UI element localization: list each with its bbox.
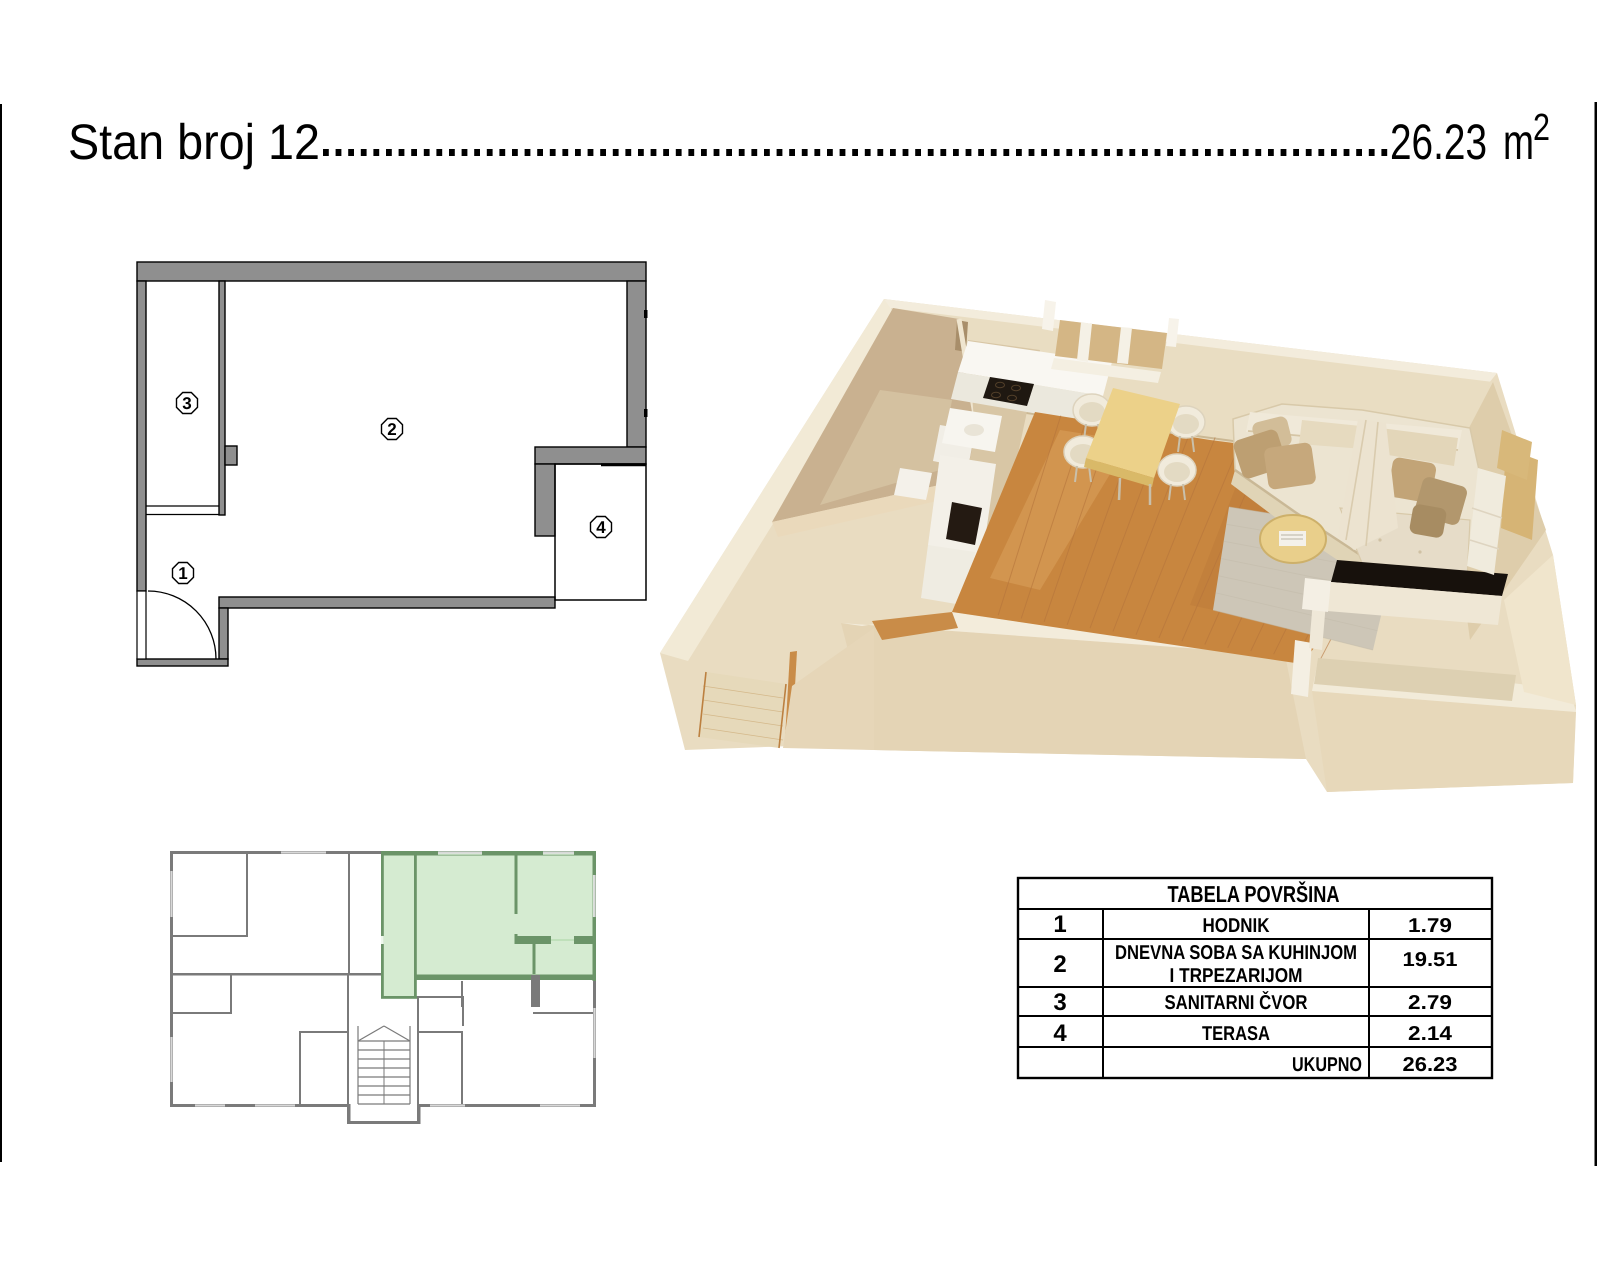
svg-text:TERASA: TERASA	[1202, 1023, 1270, 1045]
svg-text:3: 3	[1053, 989, 1066, 1016]
svg-text:19.51: 19.51	[1403, 949, 1458, 971]
svg-text:2.14: 2.14	[1408, 1023, 1453, 1045]
svg-text:2: 2	[387, 420, 396, 439]
svg-text:DNEVNA SOBA SA KUHINJOM: DNEVNA SOBA SA KUHINJOM	[1115, 942, 1357, 964]
svg-text:1.79: 1.79	[1408, 915, 1452, 937]
svg-text:I TRPEZARIJOM: I TRPEZARIJOM	[1170, 965, 1303, 987]
svg-text:Stan broj 12: Stan broj 12	[68, 114, 320, 170]
svg-text:2: 2	[1053, 951, 1066, 978]
svg-text:1: 1	[178, 564, 187, 583]
svg-text:2.79: 2.79	[1408, 992, 1452, 1014]
svg-text:4: 4	[596, 518, 606, 537]
svg-text:1: 1	[1053, 911, 1066, 938]
svg-text:3: 3	[182, 394, 191, 413]
svg-text:SANITARNI ČVOR: SANITARNI ČVOR	[1165, 991, 1308, 1014]
svg-text:TABELA POVRŠINA: TABELA POVRŠINA	[1168, 881, 1340, 907]
svg-text:26.23: 26.23	[1403, 1054, 1458, 1076]
svg-text:HODNIK: HODNIK	[1203, 915, 1270, 937]
svg-text:UKUPNO: UKUPNO	[1292, 1054, 1362, 1076]
svg-text:2: 2	[1533, 107, 1550, 149]
svg-text:m: m	[1503, 114, 1534, 170]
svg-text:26.23: 26.23	[1390, 114, 1487, 170]
svg-text:4: 4	[1053, 1020, 1067, 1047]
